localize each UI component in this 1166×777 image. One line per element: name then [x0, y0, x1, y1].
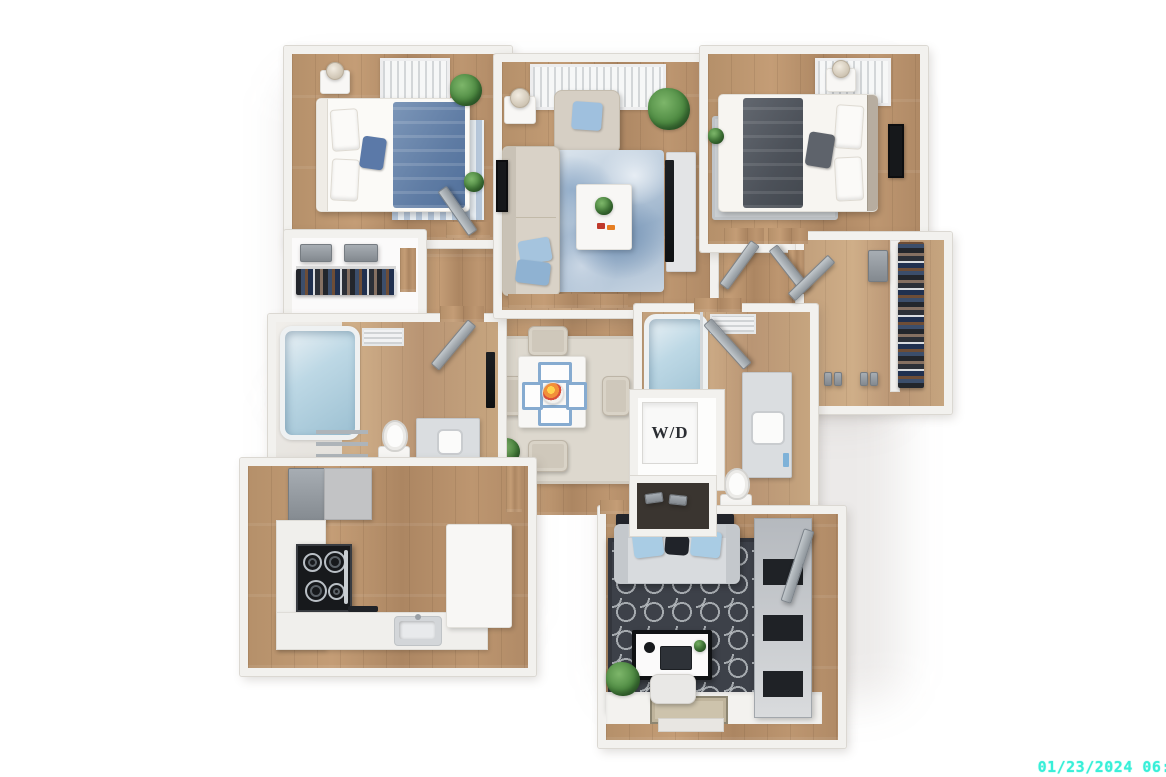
table-plant	[595, 197, 613, 215]
shoes	[669, 494, 688, 506]
vanity	[416, 418, 480, 462]
wall-art	[496, 160, 508, 212]
oven-handle	[344, 550, 348, 604]
stove-cooktop	[296, 544, 352, 612]
kitchen-island	[446, 524, 512, 628]
walk-in-closet	[796, 232, 952, 414]
palm-plant	[648, 88, 690, 130]
shoes	[870, 372, 878, 386]
table-decor	[597, 223, 605, 229]
shoes	[824, 372, 832, 386]
floor-lamp	[510, 88, 530, 108]
dining-chair	[528, 326, 568, 356]
placemat	[538, 362, 572, 383]
blanket	[393, 102, 465, 208]
counter-utensil	[348, 606, 378, 612]
burner	[328, 583, 345, 600]
bathtub	[280, 326, 360, 440]
coffee-table	[576, 184, 632, 250]
blanket	[743, 98, 803, 208]
potted-plant	[450, 74, 482, 106]
table-decor	[607, 225, 615, 230]
doorway	[400, 248, 416, 292]
potted-plant	[464, 172, 484, 192]
shoes	[644, 492, 663, 504]
dining-chair	[602, 376, 630, 416]
floor-plan-render: W/D	[0, 0, 1166, 777]
armchair-pillow	[571, 101, 603, 131]
opening-living-to-hall	[508, 294, 628, 308]
shoes	[834, 372, 842, 386]
accent-pillow	[359, 135, 387, 170]
bed	[718, 94, 878, 212]
toilet	[382, 420, 408, 452]
cabinet-shelf-opening	[763, 671, 803, 697]
living-room	[494, 54, 718, 318]
dining-table	[518, 356, 586, 428]
doorway	[768, 228, 808, 244]
toilet	[724, 468, 750, 500]
pillow	[833, 104, 864, 150]
placemat	[566, 382, 587, 410]
faucet	[415, 614, 421, 620]
sofa	[502, 146, 560, 296]
pillow	[834, 156, 864, 201]
pillow	[330, 108, 361, 152]
throw-blanket	[664, 534, 689, 556]
desk-decor	[644, 642, 655, 653]
laptop	[660, 646, 692, 670]
towel-ladder	[316, 424, 368, 458]
armchair	[554, 90, 620, 154]
loveseat-arm	[726, 525, 739, 583]
washer-dryer-unit: W/D	[642, 402, 698, 464]
table-lamp	[326, 62, 344, 80]
desk	[632, 630, 712, 680]
sink	[437, 429, 463, 455]
washer-dryer-label: W/D	[643, 403, 697, 463]
towel	[783, 453, 789, 467]
opening-kitchen-to-hall	[506, 466, 522, 512]
bedroom-1	[284, 46, 512, 248]
washer-dryer-closet: W/D	[630, 390, 724, 490]
timestamp: 01/23/2024 06:	[1038, 758, 1166, 776]
potted-plant	[708, 128, 724, 144]
refrigerator	[288, 468, 326, 524]
storage-box	[300, 244, 332, 262]
bedroom-2	[700, 46, 928, 252]
hanging-clothes	[296, 269, 396, 295]
accent-pillow	[805, 131, 836, 169]
storage-box	[344, 244, 378, 262]
cabinet-shelf-opening	[763, 615, 803, 641]
wall-art	[888, 124, 904, 178]
table-lamp	[832, 60, 850, 78]
fruit-bowl	[542, 382, 564, 404]
upper-cabinet	[324, 468, 372, 520]
sofa-pillow	[515, 259, 552, 286]
ceiling-vent	[362, 328, 404, 346]
cushion-seam	[516, 217, 556, 218]
kitchen-sink	[394, 616, 442, 646]
pillow	[330, 158, 360, 201]
tv	[665, 160, 674, 262]
desk-plant	[694, 640, 706, 652]
hanging-clothes	[898, 242, 924, 388]
hall-tv	[486, 352, 495, 408]
headboard	[867, 95, 878, 211]
headboard	[317, 99, 328, 211]
wall-unit	[868, 250, 888, 282]
shoe-shelf	[630, 476, 716, 536]
entry-door	[658, 718, 724, 732]
sink-basin	[399, 621, 435, 639]
loveseat-arm	[615, 525, 628, 583]
doorway	[694, 298, 742, 312]
kitchen	[240, 458, 536, 676]
potted-plant	[606, 662, 640, 696]
sink	[751, 411, 785, 445]
burner	[305, 580, 327, 602]
desk-chair	[650, 674, 696, 704]
placemat	[522, 382, 543, 410]
doorway	[440, 306, 484, 322]
vanity	[742, 372, 792, 478]
burner	[303, 553, 322, 572]
burner	[324, 551, 346, 573]
shoes	[860, 372, 868, 386]
doorway	[724, 228, 764, 244]
